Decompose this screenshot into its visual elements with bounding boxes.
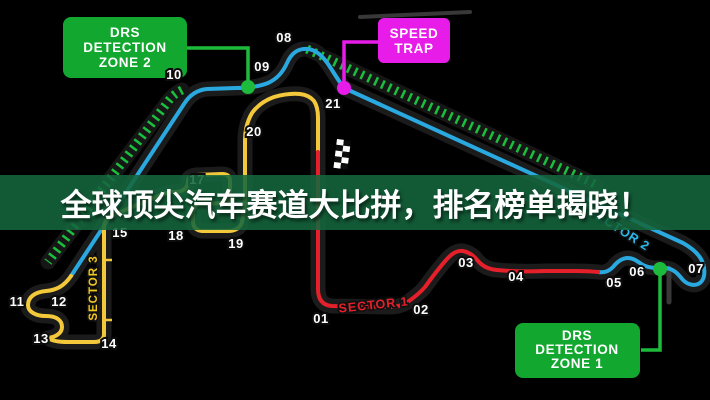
pit-lane-top (360, 12, 470, 17)
turn-label-14: 14 (101, 336, 117, 351)
flag-cell (333, 162, 341, 169)
turn-label-18: 18 (168, 228, 183, 243)
turn-label-04: 04 (508, 269, 524, 284)
drs2-detection-dot (241, 80, 255, 94)
flag-cell (342, 151, 350, 158)
flag-cell (341, 157, 349, 164)
headline-banner: 全球顶尖汽车赛道大比拼，排名榜单揭晓！ (0, 175, 710, 230)
turn-label-01: 01 (313, 311, 328, 326)
speed-trap-box: SPEED TRAP (378, 18, 450, 63)
turn-label-10: 10 (166, 67, 181, 82)
turn-label-03: 03 (458, 255, 473, 270)
turn-label-06: 06 (629, 264, 644, 279)
drs1-line1: DRS (562, 328, 592, 343)
drs2-line1: DRS (110, 25, 140, 40)
flag-cell (343, 140, 351, 147)
drs1-line3: ZONE 1 (551, 356, 603, 371)
speedtrap-line1: SPEED (390, 26, 439, 41)
turn-label-08: 08 (276, 30, 291, 45)
speedtrap-line2: TRAP (394, 41, 433, 56)
drs1-detection-dot (653, 262, 667, 276)
turn-label-07: 07 (688, 261, 703, 276)
turn-label-13: 13 (33, 331, 48, 346)
turn-label-12: 12 (51, 294, 66, 309)
flag-cell (336, 139, 344, 146)
flag-cell (336, 145, 344, 152)
flag-cell (335, 151, 343, 158)
turn-label-21: 21 (325, 96, 340, 111)
drs1-connector (641, 269, 660, 350)
speed-trap-dot (337, 81, 351, 95)
turn-label-11: 11 (10, 294, 25, 309)
start-finish-flag (333, 139, 350, 169)
track-map-screenshot: DRS DETECTION ZONE 2 SPEED TRAP DRS DETE… (0, 0, 710, 400)
turn-label-19: 19 (228, 236, 243, 251)
turn-label-02: 02 (413, 302, 428, 317)
turn-label-05: 05 (606, 275, 621, 290)
flag-cell (340, 163, 348, 170)
headline-text: 全球顶尖汽车赛道大比拼，排名榜单揭晓！ (61, 180, 650, 225)
drs2-line2: DETECTION (83, 40, 166, 55)
sector3-label: SECTOR 3 (88, 255, 100, 320)
drs2-line3: ZONE 2 (99, 55, 151, 70)
drs-detection-zone-1-box: DRS DETECTION ZONE 1 (515, 323, 640, 378)
turn-label-09: 09 (254, 59, 269, 74)
drs1-line2: DETECTION (535, 342, 618, 357)
flag-cell (343, 146, 351, 153)
flag-cell (334, 156, 342, 163)
turn-label-20: 20 (246, 124, 261, 139)
